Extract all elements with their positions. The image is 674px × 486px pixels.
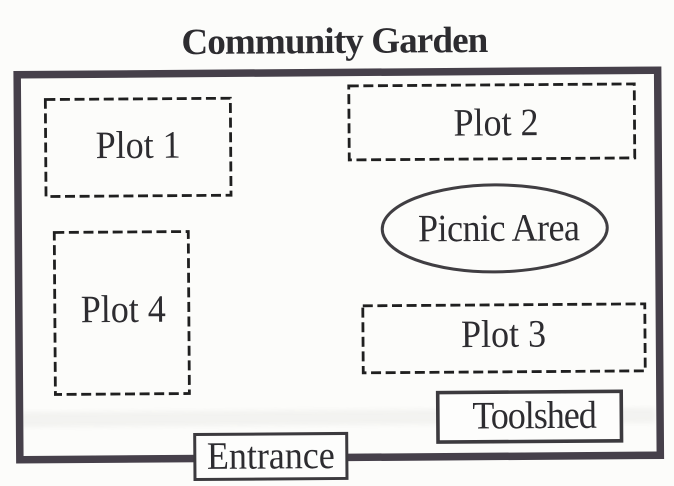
svg-text:Plot 4: Plot 4	[81, 288, 167, 331]
svg-text:Plot 2: Plot 2	[453, 102, 538, 145]
svg-text:Community Garden: Community Garden	[181, 20, 489, 63]
svg-text:Picnic Area: Picnic Area	[418, 207, 581, 251]
svg-text:Plot 1: Plot 1	[96, 124, 181, 167]
svg-text:Plot 3: Plot 3	[461, 313, 546, 356]
svg-text:Toolshed: Toolshed	[472, 394, 597, 437]
svg-text:Entrance: Entrance	[207, 435, 335, 478]
